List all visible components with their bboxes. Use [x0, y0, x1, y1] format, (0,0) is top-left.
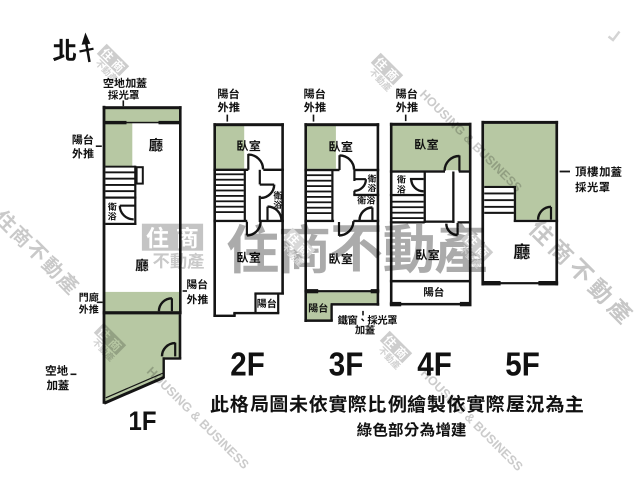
- svg-text:2F: 2F: [230, 346, 265, 383]
- svg-text:1F: 1F: [129, 406, 157, 436]
- svg-text:5F: 5F: [505, 346, 540, 383]
- svg-text:3F: 3F: [329, 346, 364, 383]
